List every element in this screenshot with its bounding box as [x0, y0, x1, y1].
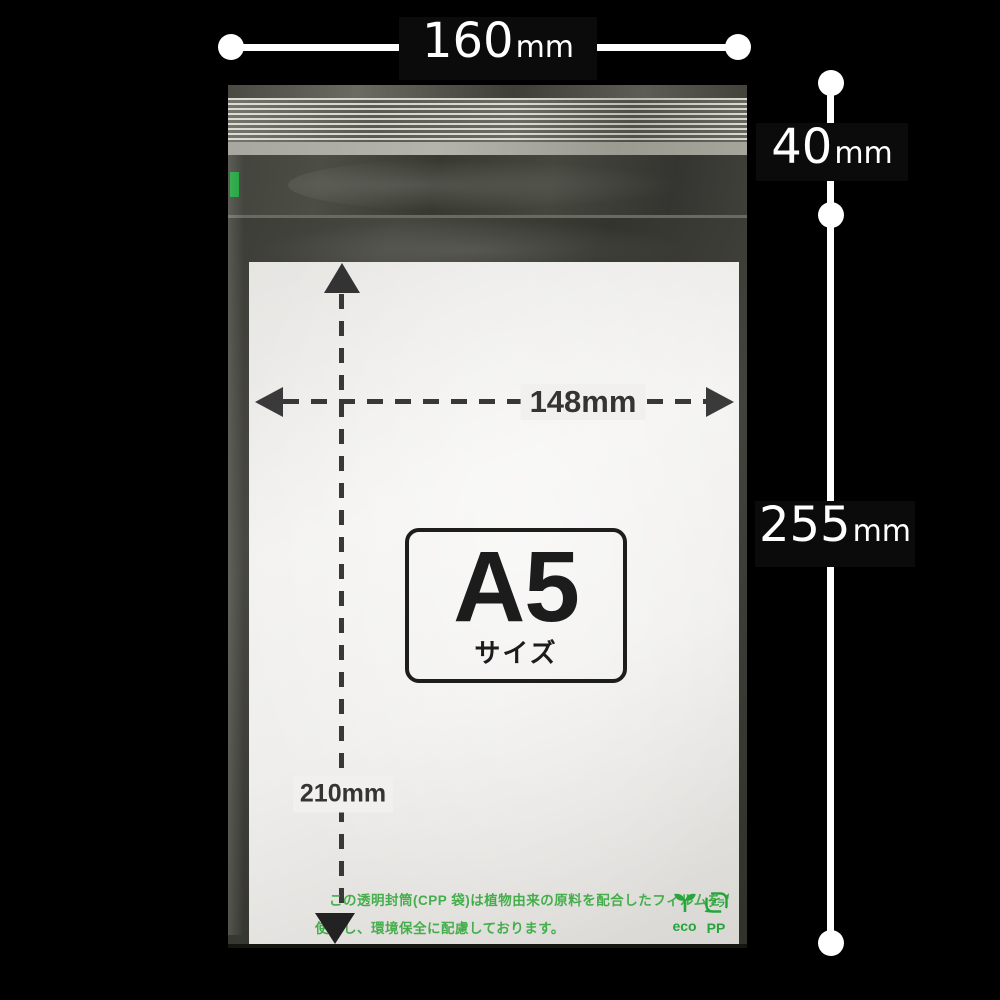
inner-height-value: 210: [300, 780, 342, 808]
height-value: 255: [759, 501, 851, 549]
arrow-down-icon: [315, 913, 355, 944]
flap-unit: mm: [834, 139, 892, 169]
height-dimension-label: 255 mm: [755, 501, 915, 567]
a5-paper-insert: 148mm 210mm A5 サイズ この透明封筒(CPP 袋)は植物由来の原料…: [249, 262, 739, 944]
green-seal-mark: [230, 172, 239, 197]
eco-badge-label: eco: [672, 919, 696, 933]
dimension-endpoint-dot: [818, 202, 844, 228]
svg-text:プラ: プラ: [707, 898, 725, 909]
width-unit: mm: [516, 33, 574, 63]
arrow-left-icon: [255, 387, 283, 417]
bag-flap-band: [228, 142, 747, 155]
bag-adhesive-strip: [228, 98, 747, 142]
inner-height-unit: mm: [342, 780, 386, 808]
dimension-endpoint-dot: [725, 34, 751, 60]
flap-dimension-label: 40 mm: [756, 123, 908, 181]
inner-width-dimension: 148mm: [521, 384, 646, 420]
paper-size-suffix: サイズ: [474, 633, 557, 670]
arrow-right-icon: [706, 387, 734, 417]
dimension-endpoint-dot: [818, 70, 844, 96]
eco-note-line1: この透明封筒(CPP 袋)は植物由来の原料を配合したフィルムを: [329, 889, 722, 909]
paper-size-badge: A5 サイズ: [405, 528, 627, 683]
width-value: 160: [422, 17, 514, 65]
bag-top-edge: [228, 85, 747, 98]
paper-size-text: A5: [453, 541, 579, 633]
eco-sprout-icon: [672, 891, 698, 918]
height-unit: mm: [853, 517, 911, 547]
eco-badge: eco: [668, 891, 701, 933]
pp-badge-label: PP: [707, 921, 726, 935]
flap-value: 40: [771, 123, 832, 171]
arrow-up-icon: [324, 263, 360, 293]
bag-flap: [228, 155, 747, 215]
product-dimension-diagram: 148mm 210mm A5 サイズ この透明封筒(CPP 袋)は植物由来の原料…: [0, 0, 1000, 1000]
vertical-dashed-measure-line: [339, 294, 344, 914]
dimension-endpoint-dot: [818, 930, 844, 956]
cpp-bag: 148mm 210mm A5 サイズ この透明封筒(CPP 袋)は植物由来の原料…: [228, 85, 747, 948]
inner-width-value: 148: [530, 384, 582, 419]
plastic-recycling-pp-icon: プラ: [704, 891, 729, 920]
inner-width-unit: mm: [581, 384, 636, 419]
dimension-endpoint-dot: [218, 34, 244, 60]
width-dimension-label: 160 mm: [399, 17, 597, 80]
bag-bottom-edge: [228, 944, 747, 948]
inner-height-dimension: 210mm: [293, 776, 393, 813]
pp-recycling-badge: プラ PP: [701, 891, 731, 935]
